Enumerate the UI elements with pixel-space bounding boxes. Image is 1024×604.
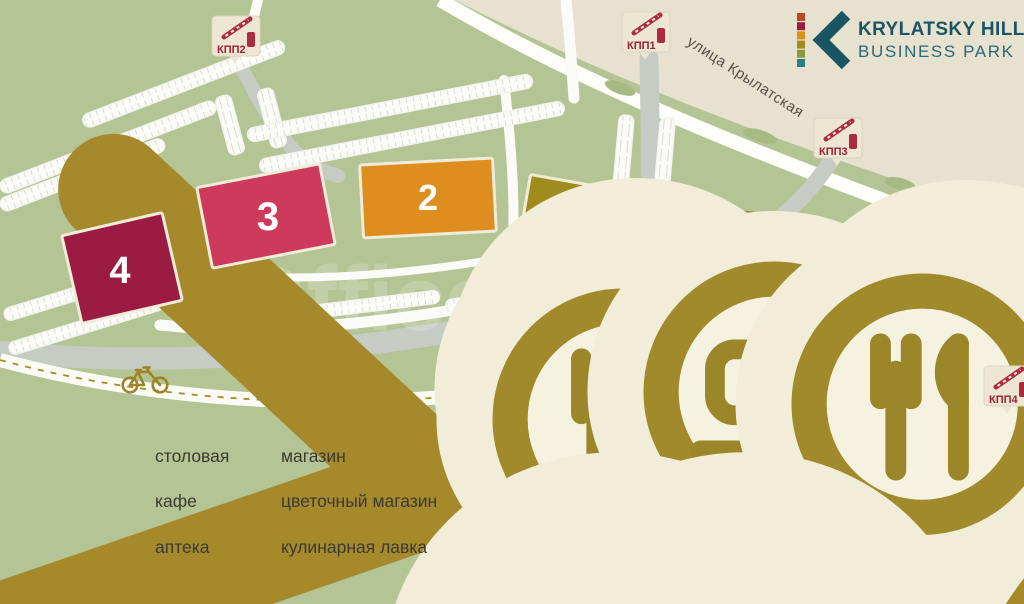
logo-square	[797, 22, 805, 30]
legend-label: кулинарная лавка	[281, 537, 427, 557]
building-2[interactable]: 2	[360, 158, 497, 238]
logo-square	[797, 31, 805, 39]
logo-square	[797, 50, 805, 58]
checkpoint-label: КПП1	[627, 40, 656, 52]
legend-label: кафе	[155, 491, 197, 511]
checkpoint-label: КПП2	[217, 44, 246, 56]
legend-label: магазин	[281, 446, 346, 466]
legend-label: столовая	[155, 446, 229, 466]
logo-title: KRYLATSKY HILLS	[858, 19, 1024, 40]
building-3-number: 3	[257, 195, 279, 239]
logo-square	[797, 59, 805, 67]
checkpoint-label: КПП3	[819, 146, 848, 158]
legend-label: цветочный магазин	[281, 491, 437, 511]
logo-square	[797, 41, 805, 49]
building-2-number: 2	[418, 177, 438, 218]
logo-subtitle: BUSINESS PARK	[858, 42, 1015, 61]
logo-square	[797, 13, 805, 21]
legend-label: аптека	[155, 537, 210, 557]
checkpoint-label: КПП4	[989, 394, 1019, 406]
business-park-map: Officenext 4 3 2	[0, 0, 1024, 604]
building-4-number: 4	[109, 250, 130, 292]
